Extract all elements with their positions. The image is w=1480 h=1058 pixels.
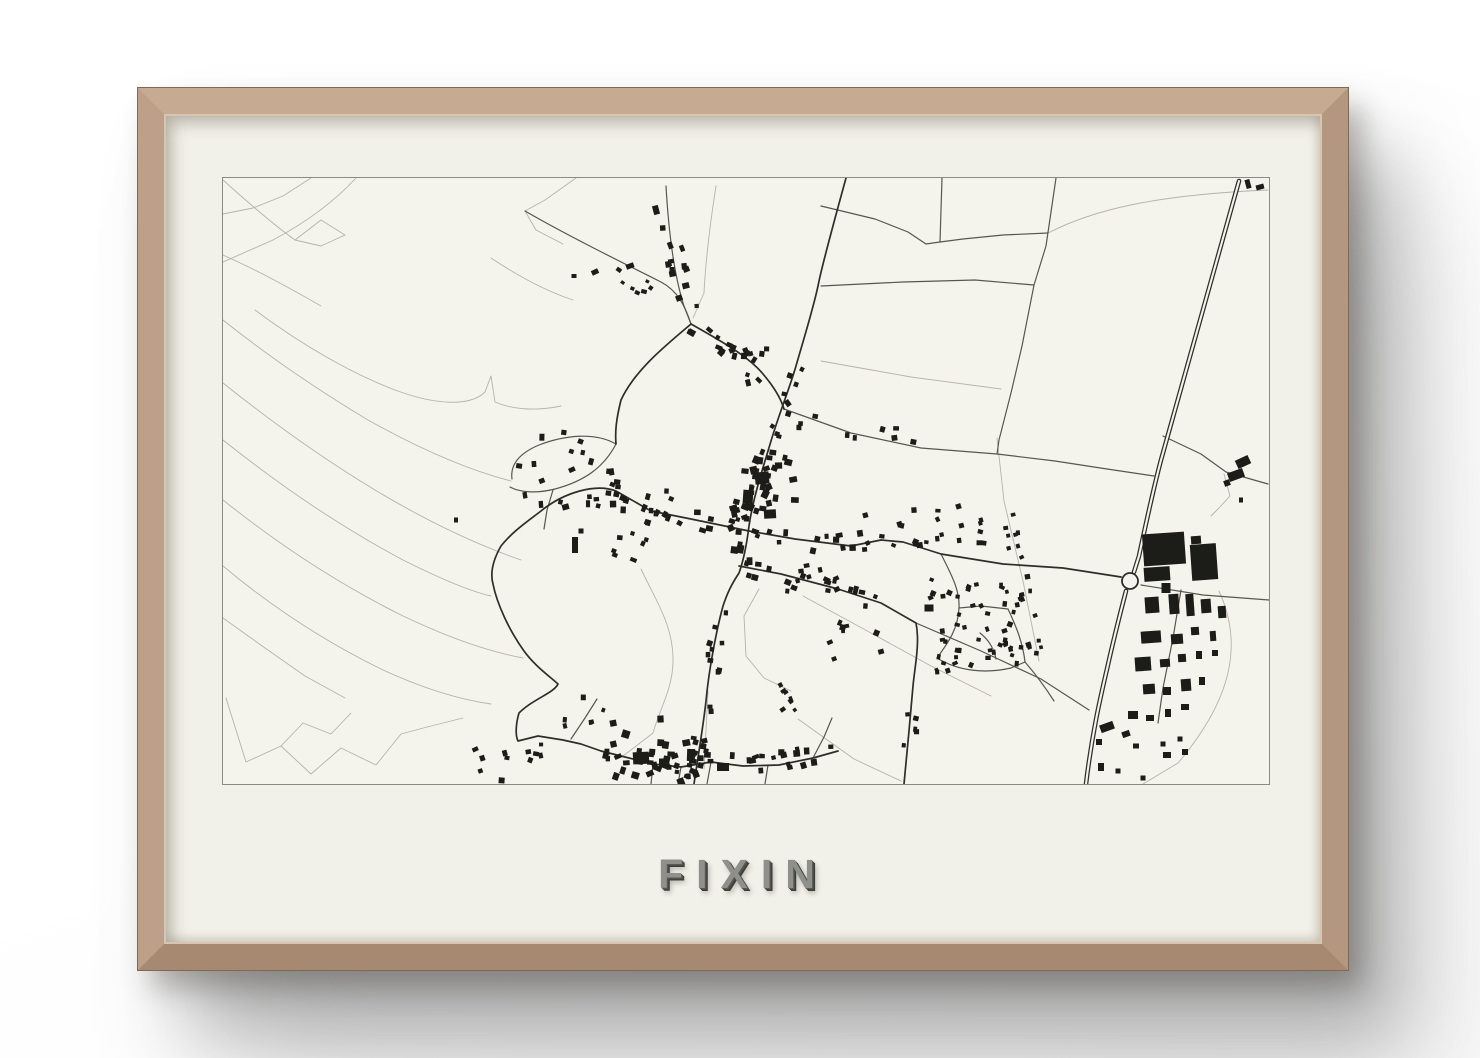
picture-frame: FIXIN [138, 88, 1348, 970]
map-panel [222, 177, 1270, 785]
map-canvas [223, 178, 1269, 784]
poster-paper: FIXIN [166, 116, 1320, 942]
poster-title: FIXIN [166, 851, 1320, 898]
